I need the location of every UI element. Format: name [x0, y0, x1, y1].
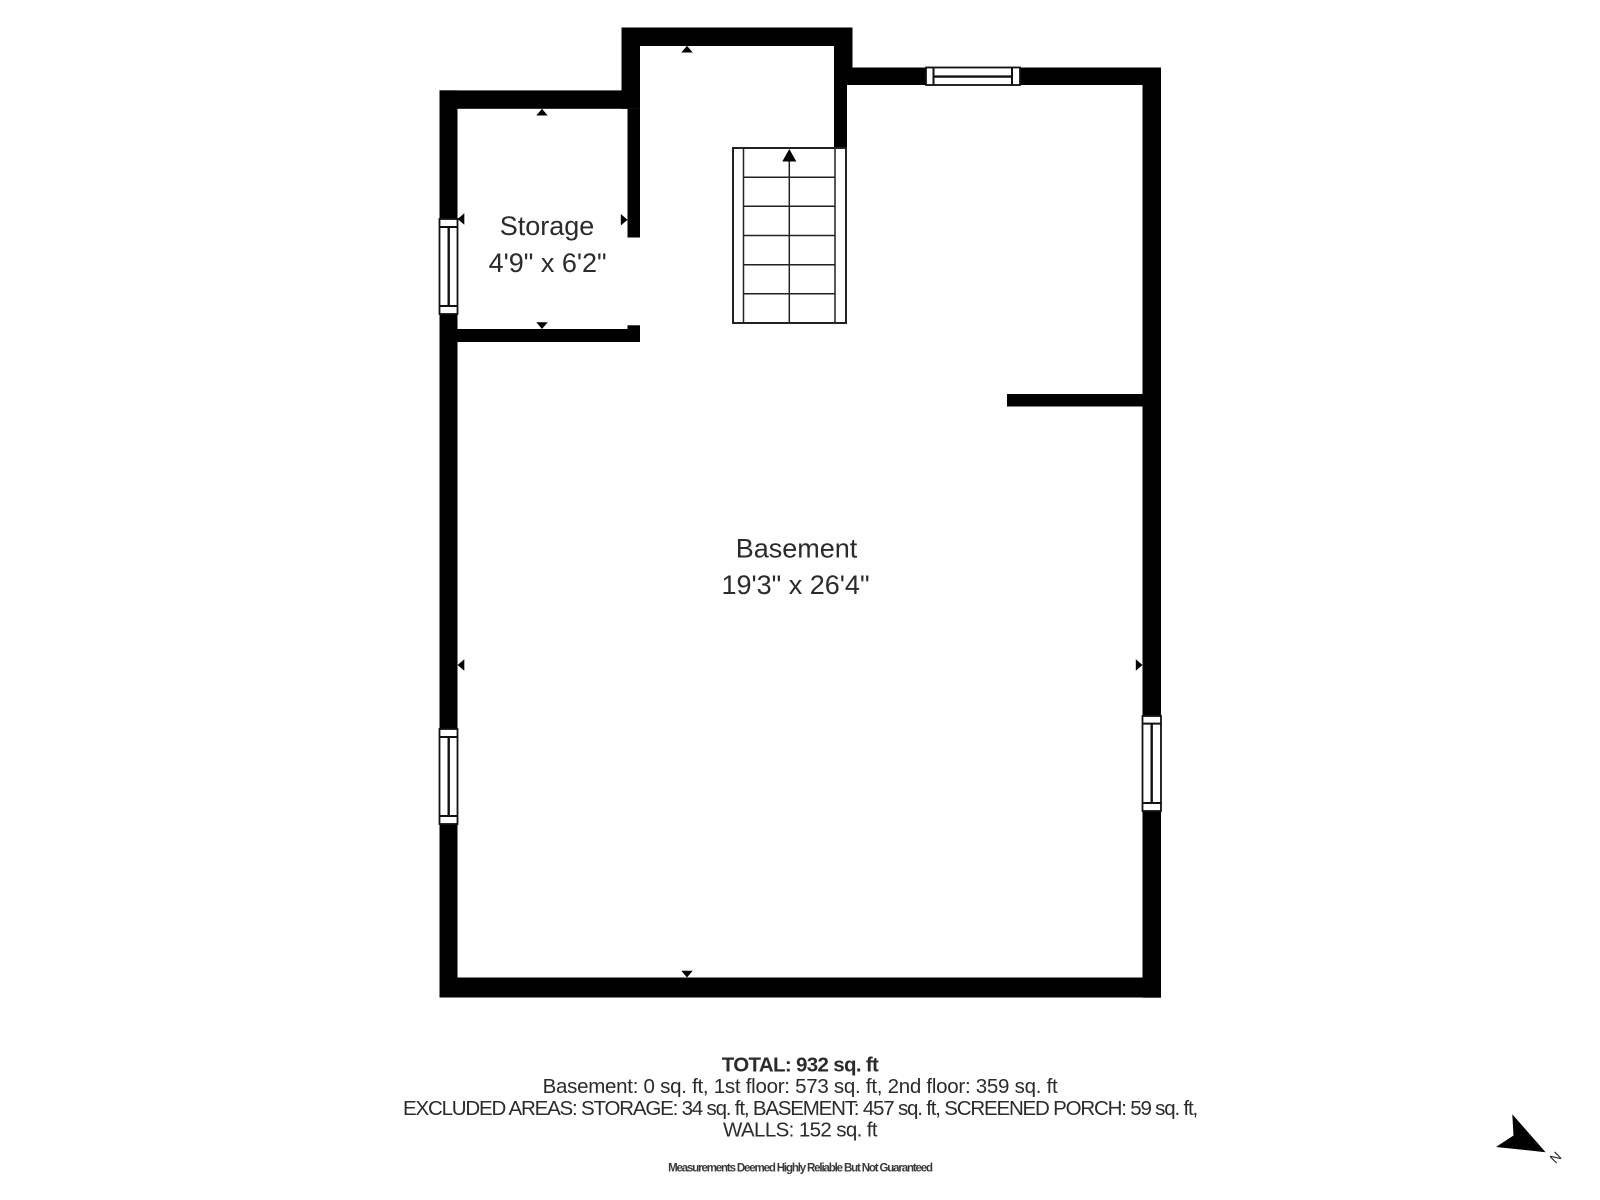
svg-text:Measurements Deemed Highly Rel: Measurements Deemed Highly Reliable But …: [668, 1163, 933, 1175]
svg-text:Basement: 0 sq. ft, 1st floor:: Basement: 0 sq. ft, 1st floor: 573 sq. f…: [543, 1075, 1058, 1098]
svg-text:Basement: Basement: [736, 534, 858, 564]
svg-text:Storage: Storage: [500, 211, 595, 241]
svg-text:WALLS: 152 sq. ft: WALLS: 152 sq. ft: [723, 1118, 878, 1141]
svg-text:4'9" x 6'2": 4'9" x 6'2": [489, 248, 607, 278]
svg-text:TOTAL: 932 sq. ft: TOTAL: 932 sq. ft: [722, 1054, 879, 1077]
svg-text:EXCLUDED AREAS: STORAGE: 34 sq: EXCLUDED AREAS: STORAGE: 34 sq. ft, BASE…: [403, 1097, 1197, 1120]
svg-text:19'3" x 26'4": 19'3" x 26'4": [721, 570, 869, 600]
